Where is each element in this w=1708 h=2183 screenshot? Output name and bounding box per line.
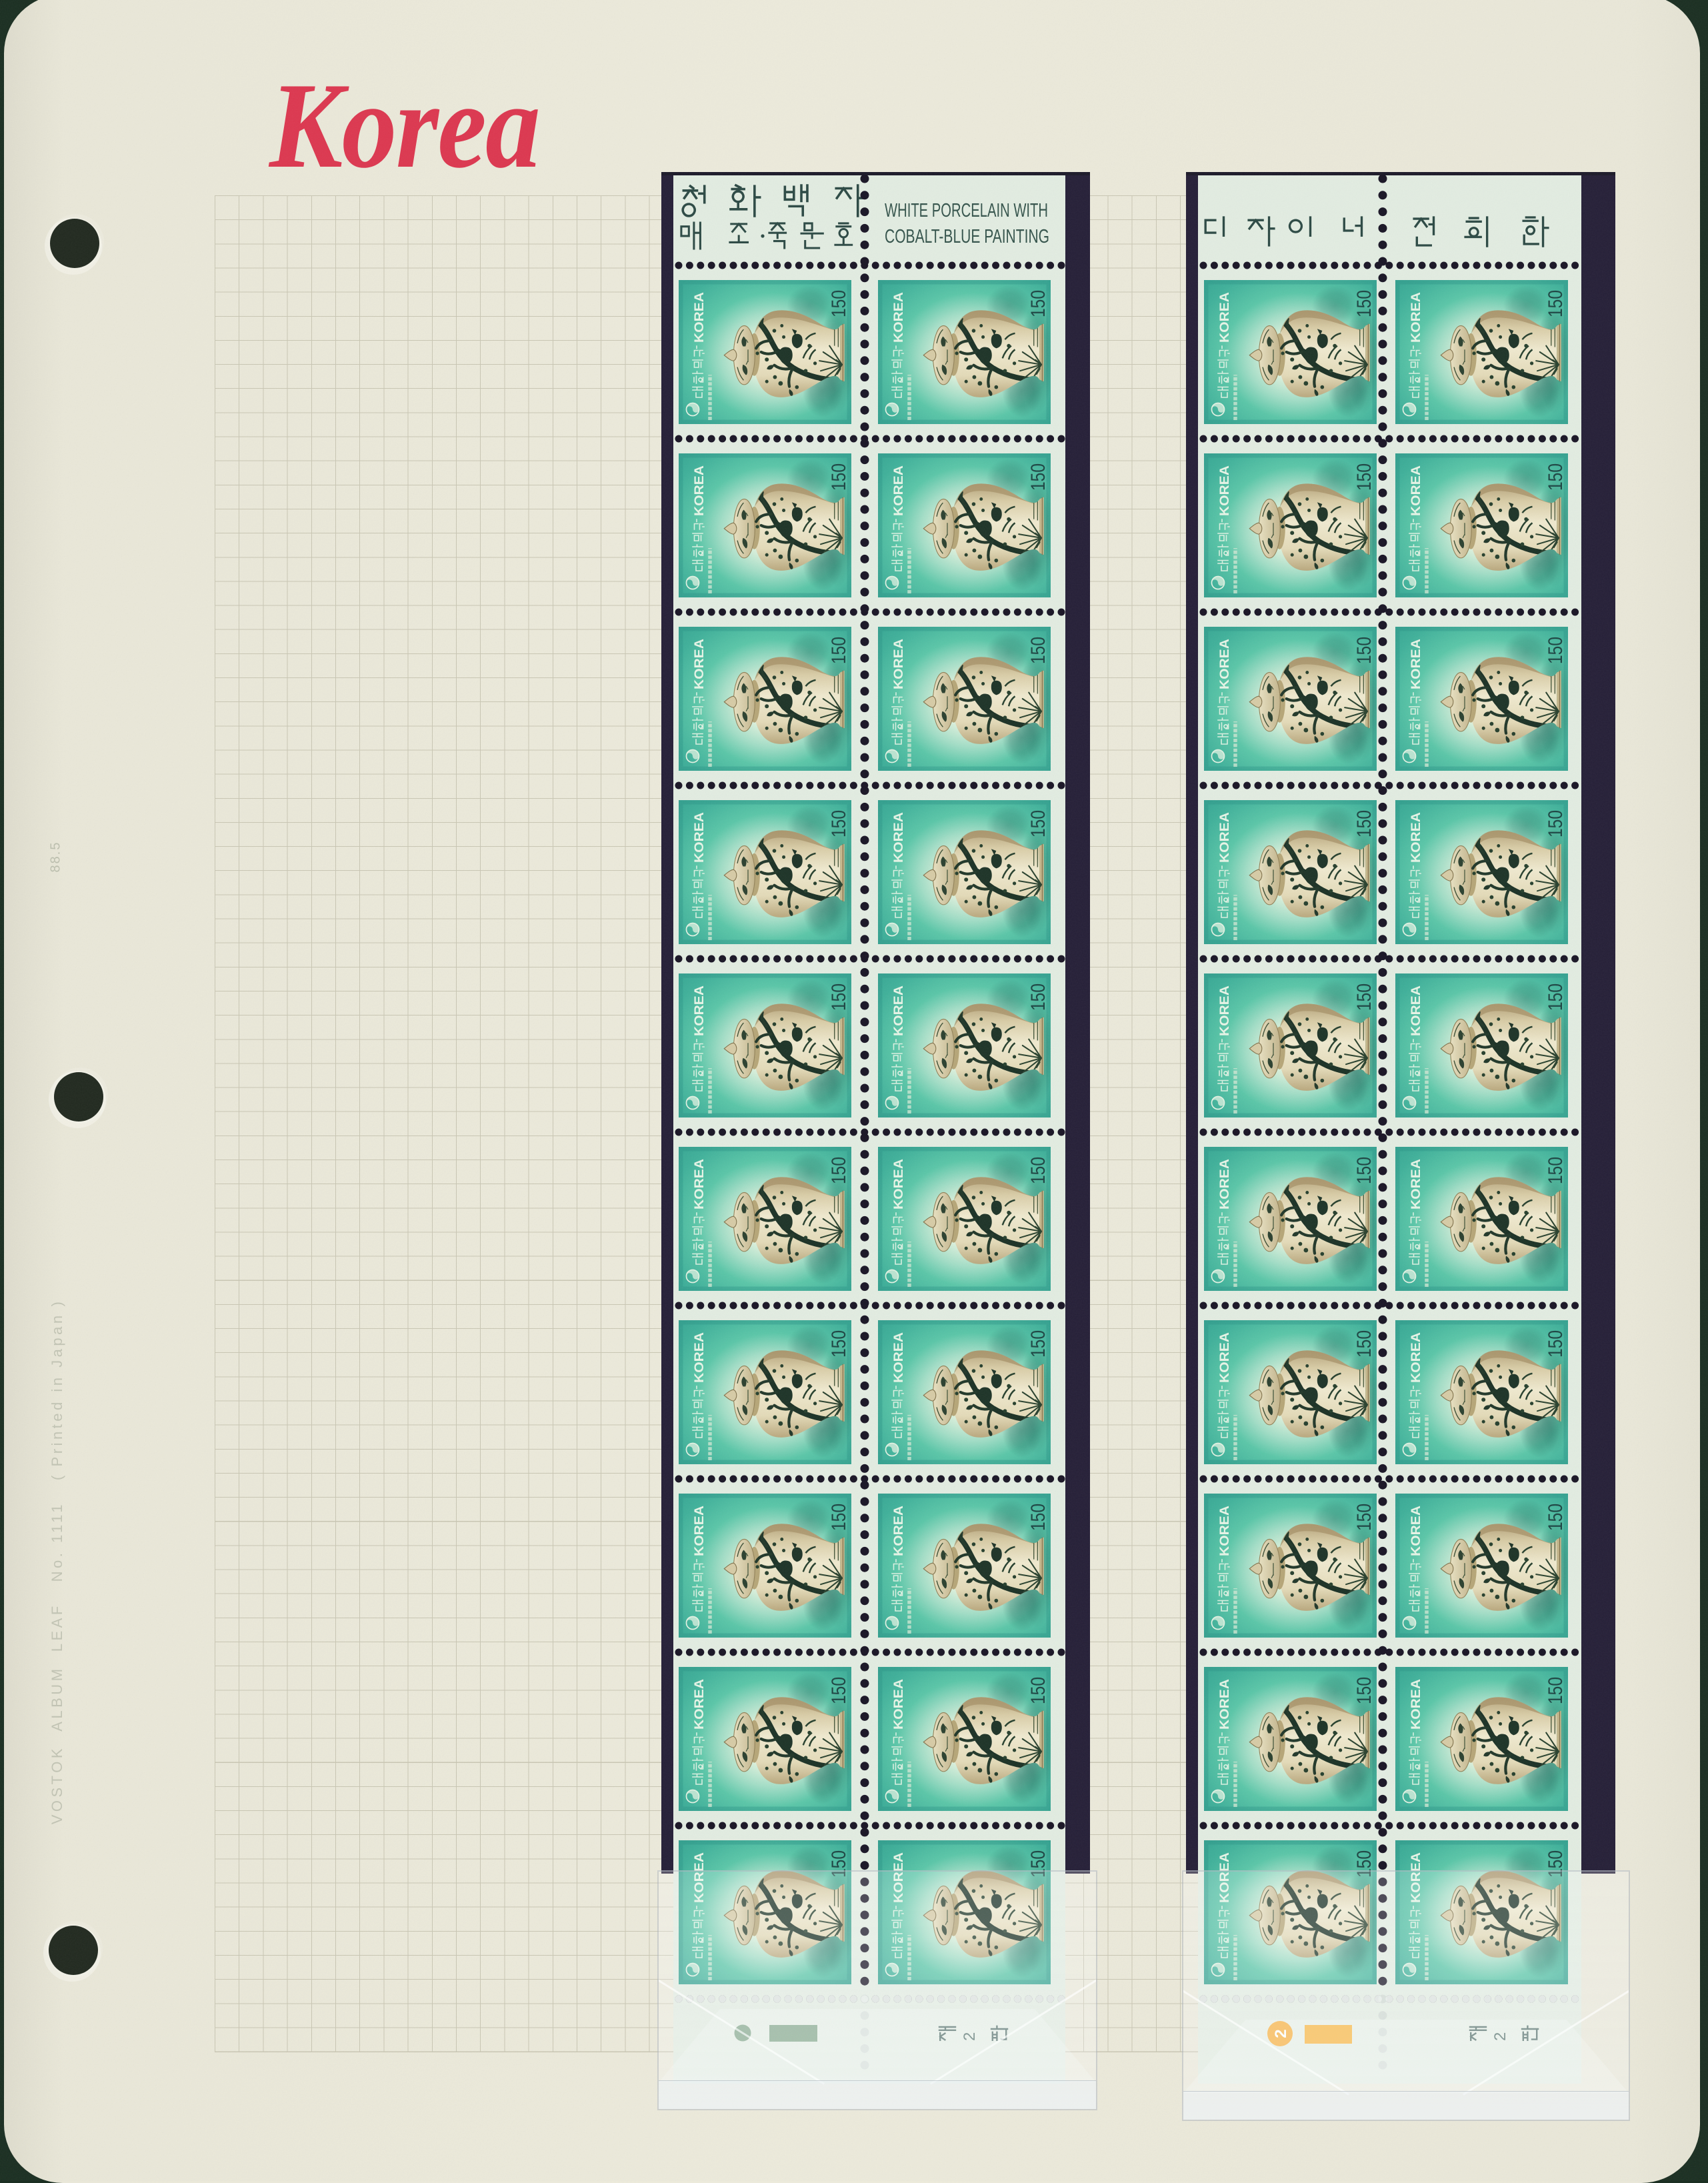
- svg-text:COBALT-BLUE PAINTING: COBALT-BLUE PAINTING: [885, 226, 1049, 247]
- svg-text:WHITE PORCELAIN WITH: WHITE PORCELAIN WITH: [885, 200, 1048, 221]
